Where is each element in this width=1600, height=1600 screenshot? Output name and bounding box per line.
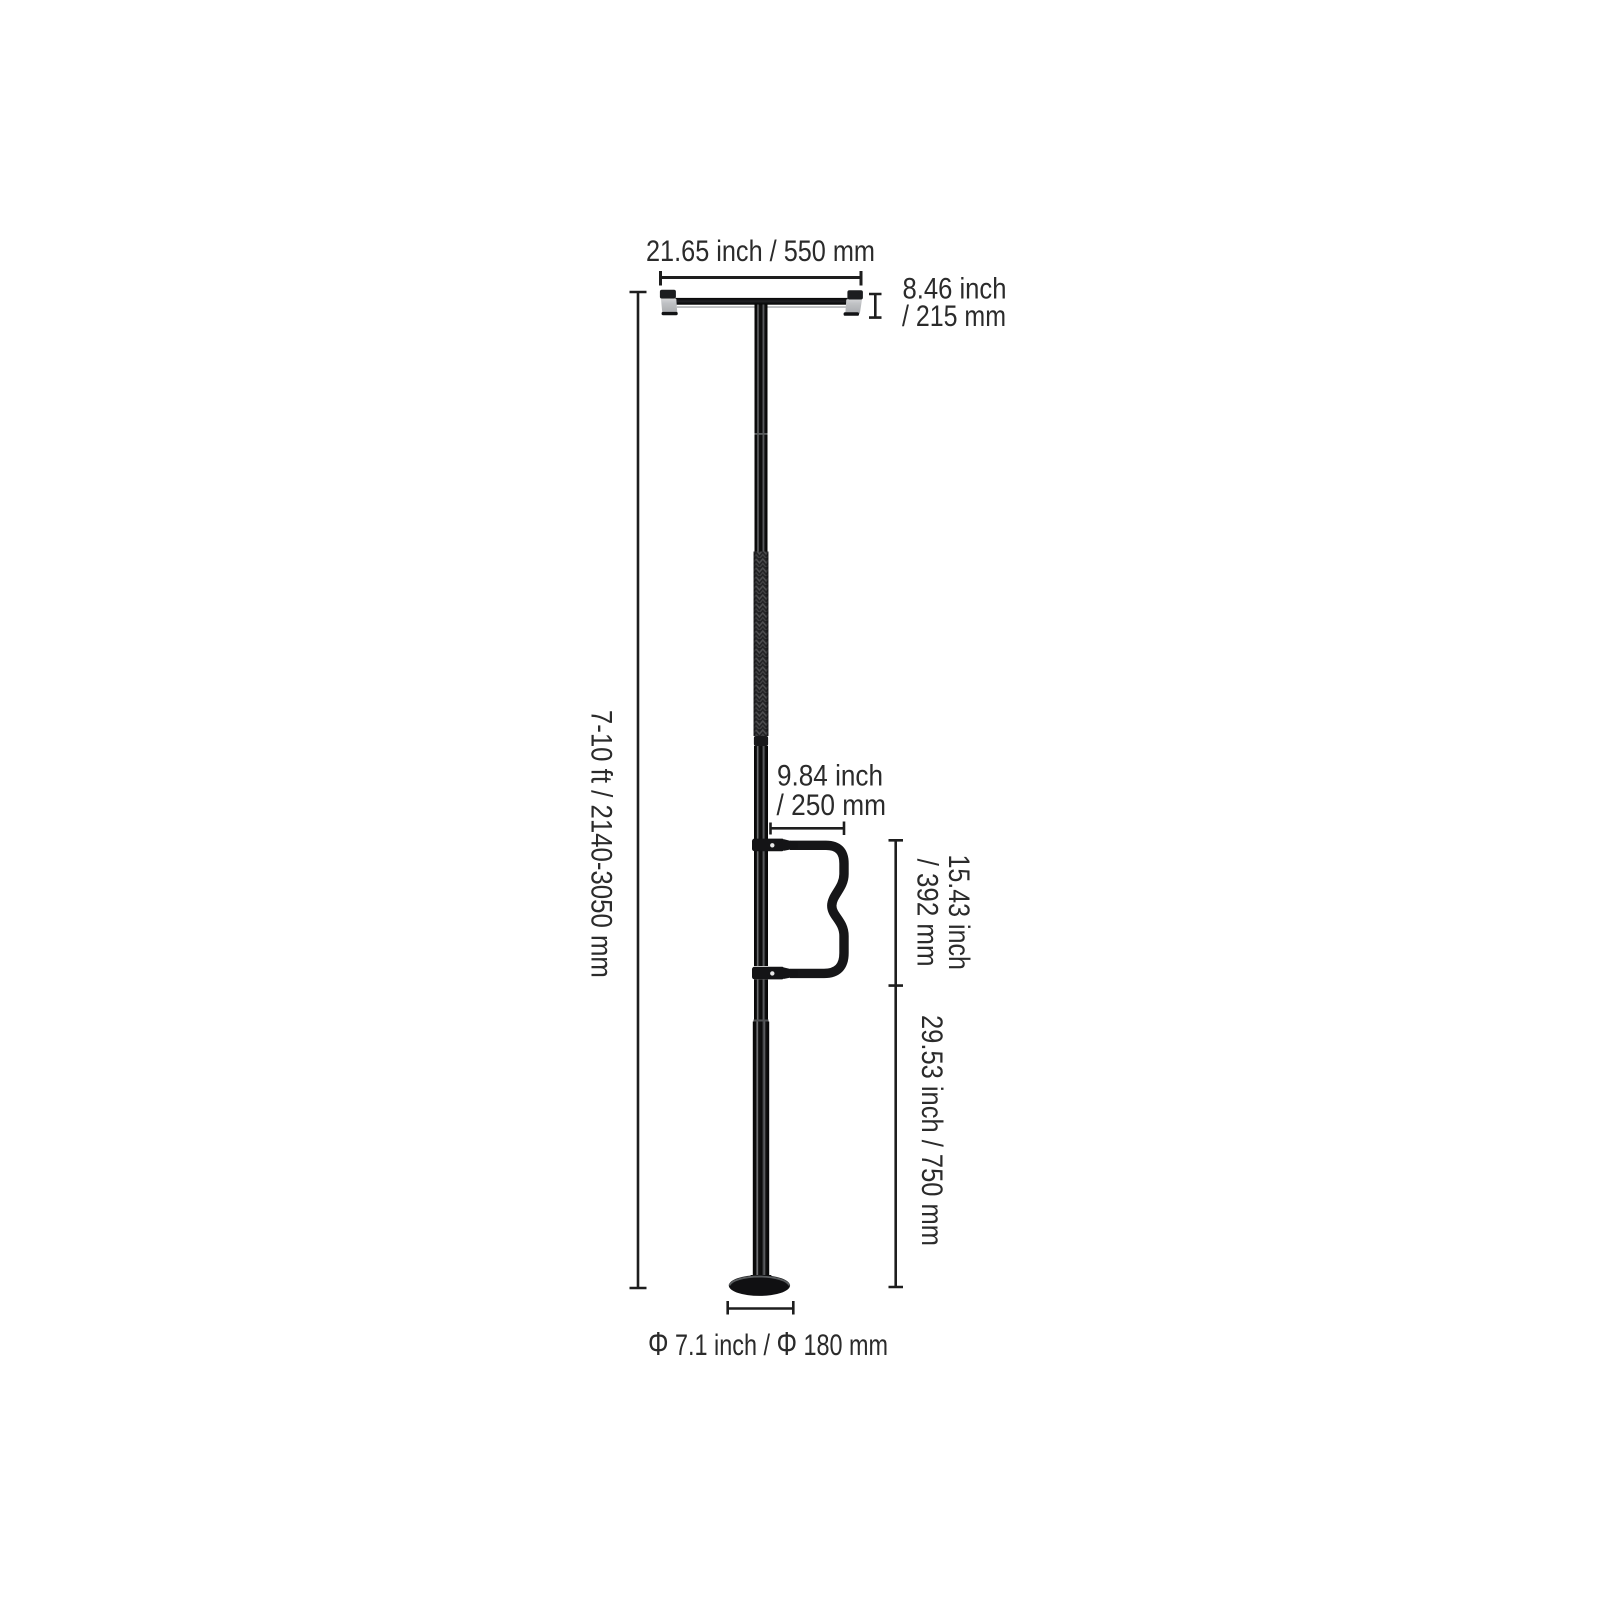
svg-text:9.84 inch: 9.84 inch	[777, 760, 883, 793]
svg-text:Φ 7.1 inch / Φ 180 mm: Φ 7.1 inch / Φ 180 mm	[648, 1325, 888, 1362]
svg-text:15.43 inch: 15.43 inch	[942, 854, 975, 970]
svg-text:/ 392 mm: / 392 mm	[910, 859, 943, 967]
svg-text:/ 250 mm: / 250 mm	[777, 789, 887, 822]
svg-text:/ 215 mm: / 215 mm	[902, 300, 1006, 333]
svg-text:29.53 inch / 750 mm: 29.53 inch / 750 mm	[915, 1015, 948, 1246]
svg-text:21.65 inch / 550 mm: 21.65 inch / 550 mm	[646, 235, 875, 268]
svg-text:7-10 ft / 2140-3050 mm: 7-10 ft / 2140-3050 mm	[585, 710, 618, 978]
